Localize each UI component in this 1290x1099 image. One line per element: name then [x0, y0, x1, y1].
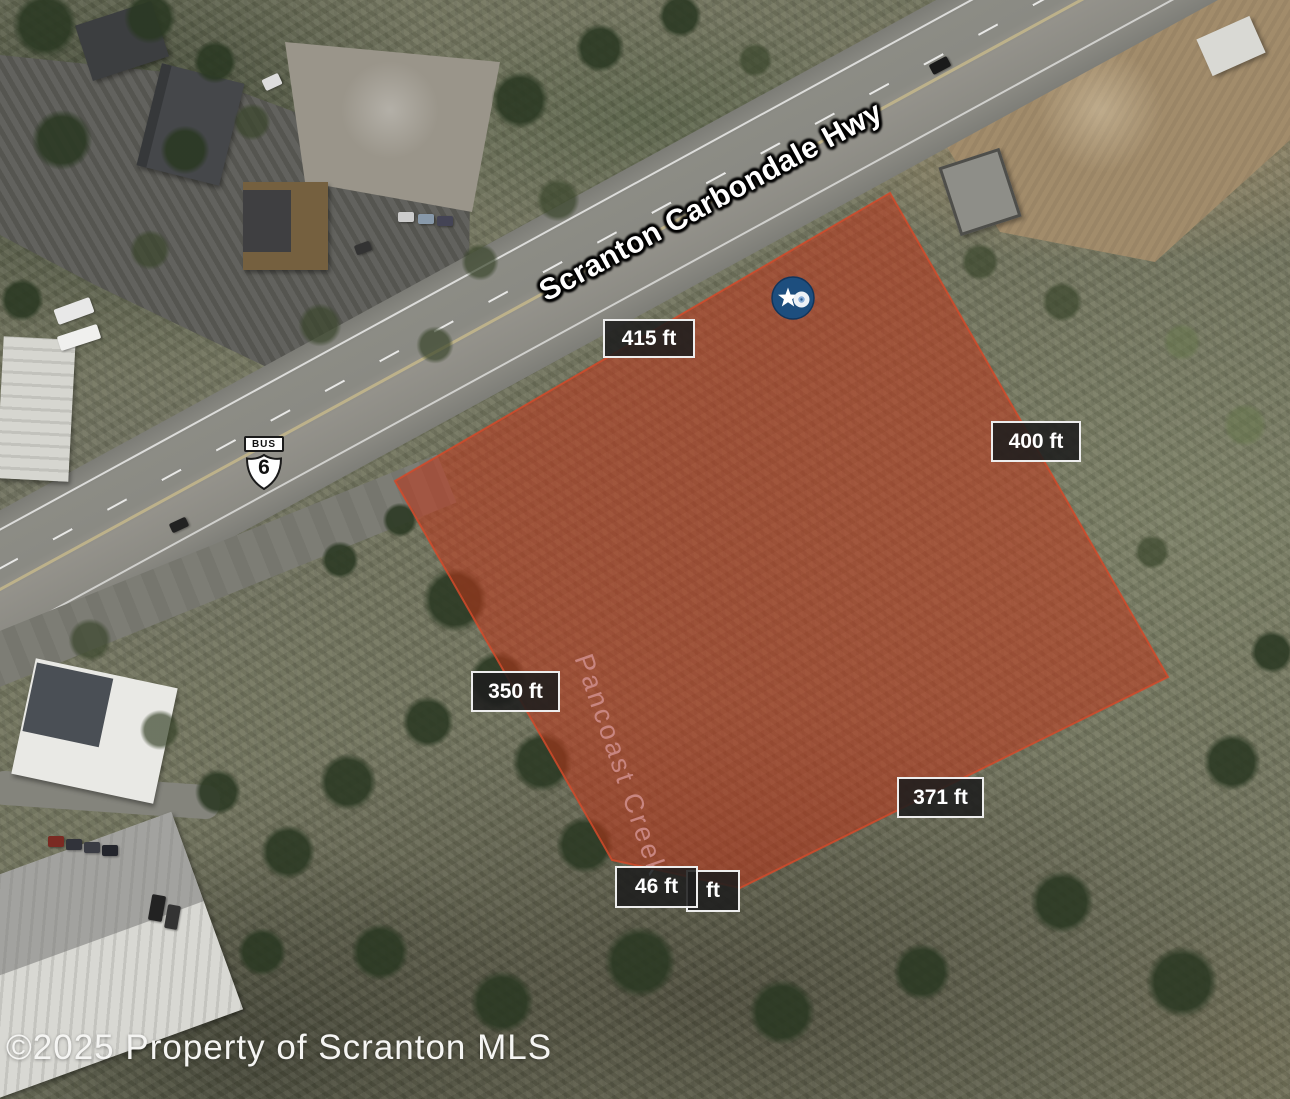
measurement-label-350ft: 350 ft: [471, 671, 560, 712]
satellite-map[interactable]: Pancoast Creek Scranton Carbondale Hwy B…: [0, 0, 1290, 1099]
measurement-label-46ft: 46 ft: [615, 866, 698, 908]
measurement-label-371ft: 371 ft: [897, 777, 984, 818]
copyright-watermark: ©2025 Property of Scranton MLS: [6, 1028, 552, 1068]
street-view-marker[interactable]: [766, 271, 820, 325]
measurement-label-400ft: 400 ft: [991, 421, 1081, 462]
parcel-overlay: [0, 0, 1290, 1099]
photo-icon-lens-dot: [800, 298, 802, 300]
measurement-label-415ft: 415 ft: [603, 319, 695, 358]
